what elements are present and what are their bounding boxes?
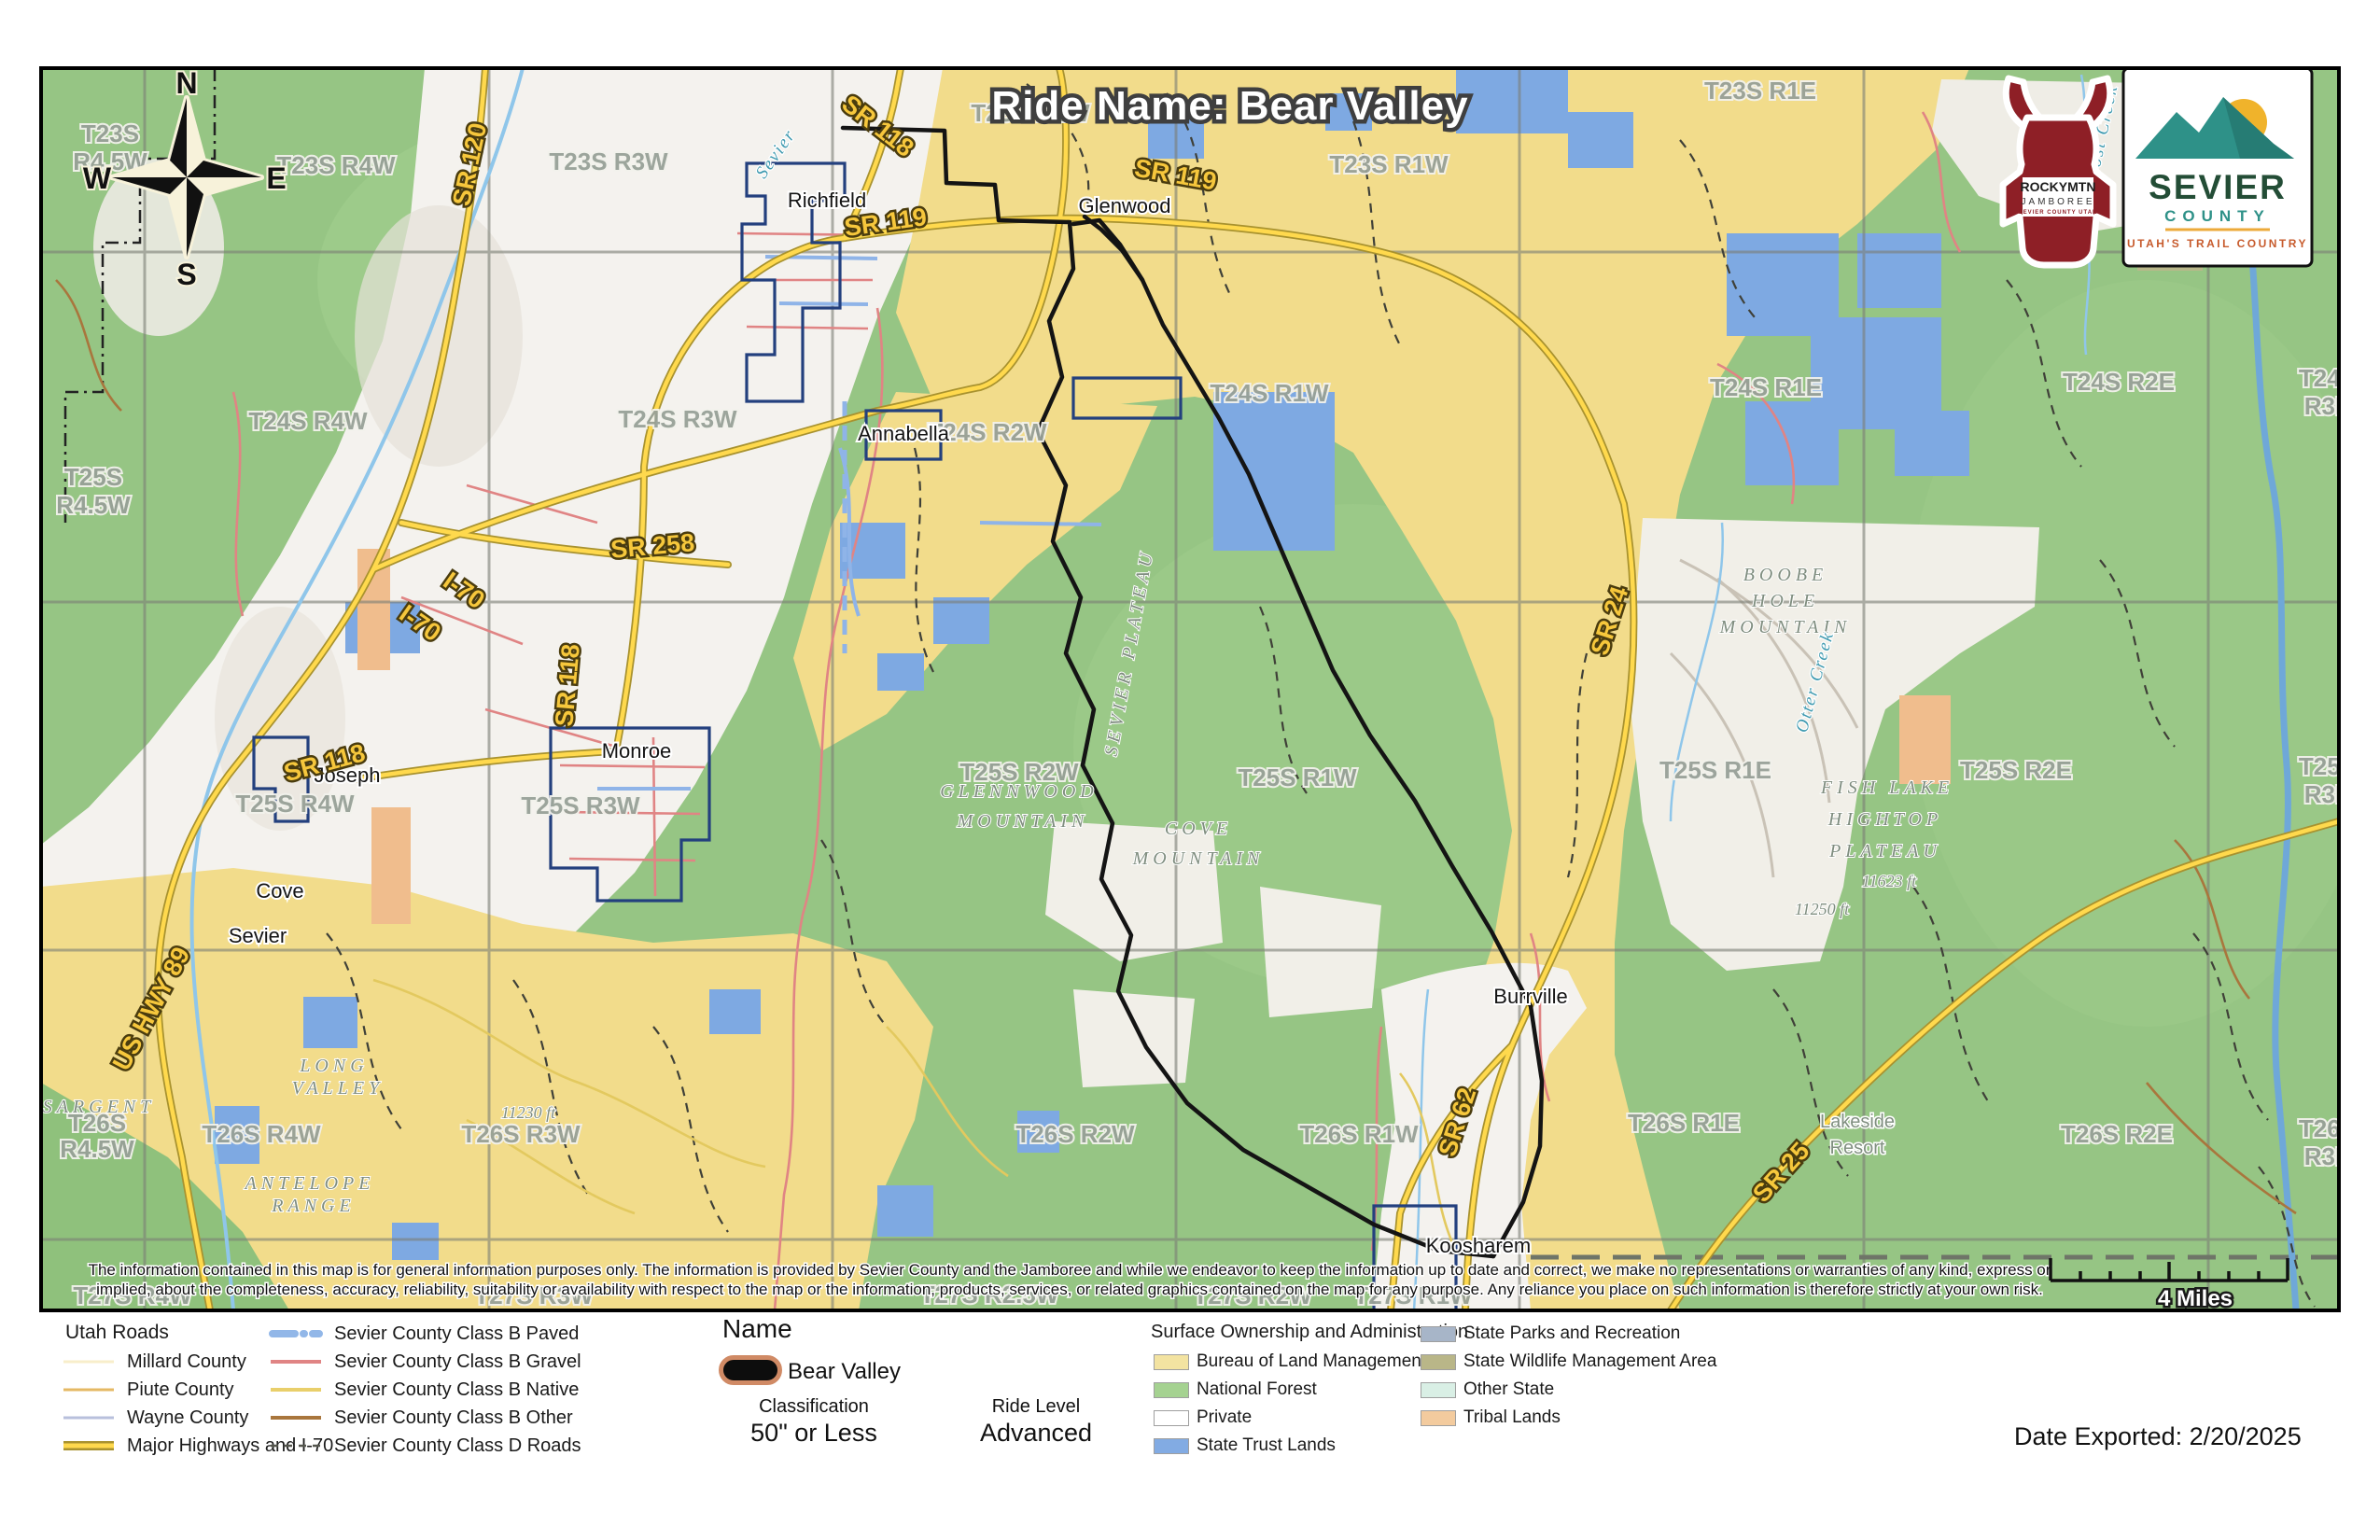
township-label: T25S R1E [1659,756,1771,784]
township-label: T23S R1E [1704,77,1816,105]
compass-s: S [176,258,196,291]
legend-item-wayne: Wayne County [62,1404,248,1432]
sevier-logo-tagline: UTAH'S TRAIL COUNTRY [2127,237,2308,250]
legend-item-b-native: Sevier County Class B Native [269,1376,579,1404]
legend-label: Other State [1463,1379,1554,1400]
b-paved-line-swatch [269,1327,323,1340]
mountain-label: MOUNTAIN [957,811,1089,832]
mountain-label: FISH LAKE [1820,777,1953,798]
mountain-label: BOOBE [1743,565,1828,585]
mountain-label: MOUNTAIN [1132,848,1265,869]
national-forest-swatch [1154,1382,1189,1398]
map-export-page: T23SR4.5WT23S R4WT23S R3WT23S R2WT23S R1… [0,0,2380,1540]
legend-item-other-state: Other State [1421,1376,1554,1404]
utah-roads-header: Utah Roads [65,1322,169,1344]
legend-label: National Forest [1197,1379,1317,1400]
legend-label: Sevier County Class B Gravel [334,1351,581,1373]
township-label: T23S R1W [1329,150,1449,178]
township-label: T23S R4W [276,151,396,179]
map-canvas: T23SR4.5WT23S R4WT23S R3WT23S R2WT23S R1… [0,0,2380,1540]
township-label: T24S R1E [1710,373,1822,401]
township-label: T25S R1W [1238,763,1357,791]
town-label: Koosharem [1426,1234,1532,1257]
major-highway-line-swatch [62,1439,116,1452]
sevier-logo-name: SEVIER [2149,168,2287,206]
township-label: T23S R3W [549,147,668,175]
township-label: T25S R3W [521,791,640,819]
mountain-label: COVE [1165,819,1232,839]
wayne-line-swatch [62,1411,116,1424]
date-exported: Date Exported: 2/20/2025 [2014,1422,2302,1451]
barren-center-3 [1260,887,1381,1017]
town-label: Annabella [858,422,950,445]
township-label: T26S R2W [1015,1120,1135,1148]
mountain-label: RANGE [271,1196,355,1216]
map-title: Ride Name: Bear Valley [991,83,1468,129]
elevation-label: 11623 ft [1862,872,1917,890]
town-label: Glenwood [1078,194,1170,217]
compass-n: N [175,66,197,100]
legend-label: Wayne County [127,1407,248,1429]
route-label: Bear Valley [788,1359,901,1385]
township-label: R4.5W [56,491,131,519]
classification-value: 50" or Less [711,1419,917,1448]
town-label: Sevier [229,924,287,947]
other-state-swatch [1421,1382,1456,1398]
ride-level-value: Advanced [933,1419,1139,1448]
township-label: R3E [2304,392,2352,420]
township-label: T25S R4W [235,790,355,818]
township-label: T25S R2E [1960,756,2072,784]
disclaimer-line-1: The information contained in this map is… [89,1261,2051,1279]
legend-item-b-other: Sevier County Class B Other [269,1404,573,1432]
mountain-label: HIGHTOP [1827,809,1942,830]
legend-label: Sevier County Class B Other [334,1407,573,1429]
tribal-swatch [1421,1410,1456,1426]
township-label: T25S [2299,752,2357,780]
mountain-label: GLENNWOOD [940,781,1098,802]
legend-label: Piute County [127,1379,234,1401]
township-label: T24S [2299,364,2357,392]
township-label: T23S [81,119,139,147]
legend-label: Bureau of Land Management [1197,1351,1426,1372]
private-swat​ch [1154,1410,1189,1426]
jamboree-line1: ROCKYMTN [2021,179,2096,194]
blm-swatch [1154,1354,1189,1370]
wildlife-swatch [1421,1354,1456,1370]
township-label: R4.5W [60,1135,134,1163]
b-native-line-swatch [269,1383,323,1396]
legend-label: State Trust Lands [1197,1435,1336,1456]
township-label: T24S R1W [1210,379,1329,407]
township-label: T26S R1E [1628,1109,1740,1137]
town-label: Monroe [602,739,672,763]
compass-w: W [83,161,112,195]
legend-item-millard: Millard County [62,1348,246,1376]
town-label: Richfield [788,189,866,212]
township-label: T24S R4W [248,407,368,435]
legend-label: Sevier County Class B Paved [334,1323,579,1345]
legend-label: Private [1197,1407,1252,1428]
township-label: T26S R2E [2061,1120,2173,1148]
legend-label: State Parks and Recreation [1463,1323,1680,1344]
legend-label: Sevier County Class B Native [334,1379,579,1401]
jamboree-line3: SEVIER COUNTY UTAH [2019,210,2098,216]
legend-item-class-d: Sevier County Class D Roads [269,1432,581,1460]
disclaimer-line-2: implied, about the completeness, accurac… [96,1281,2043,1298]
legend-item-state-parks: State Parks and Recreation [1421,1320,1680,1348]
town-label: Cove [256,879,303,903]
legend-label: State Wildlife Management Area [1463,1351,1716,1372]
township-label: T26S R3W [461,1120,581,1148]
piute-line-swatch [62,1383,116,1396]
mountain-label: VALLEY [292,1078,385,1099]
elevation-label: 11230 ft [501,1103,556,1122]
elevation-label: 11250 ft [1795,900,1850,918]
mountain-label: LONG [299,1056,368,1076]
resort-label: Lakeside [1820,1112,1895,1132]
legend-label: Millard County [127,1351,246,1373]
millard-line-swatch [62,1355,116,1368]
township-label: T24S R3W [618,405,737,433]
compass-e: E [266,161,286,195]
legend-item-b-gravel: Sevier County Class B Gravel [269,1348,581,1376]
legend-item-blm: Bureau of Land Management [1154,1348,1426,1376]
township-label: R3E [2304,1142,2352,1170]
legend-item-national-forest: National Forest [1154,1376,1317,1404]
state-trust-swatch [1154,1438,1189,1454]
state-parks-swatch [1421,1326,1456,1342]
legend-item-b-paved: Sevier County Class B Paved [269,1320,579,1348]
legend-label: Sevier County Class D Roads [334,1435,581,1457]
sevier-logo-sub: COUNTY [2164,207,2271,225]
township-label: R3E [2304,780,2352,808]
legend-item-state-trust: State Trust Lands [1154,1432,1336,1460]
mountain-label: ANTELOPE [244,1173,375,1194]
township-label: T24S R2E [2063,368,2175,396]
township-label: T26S R4W [202,1120,321,1148]
township-label: T26S R1W [1299,1120,1419,1148]
mountain-label: SARGENT [43,1097,156,1117]
sevier-county-logo: SEVIER COUNTY UTAH'S TRAIL COUNTRY [2123,68,2312,266]
class-d-line-swatch [269,1439,323,1452]
legend-item-piute: Piute County [62,1376,234,1404]
jamboree-line2: JAMBOREE [2021,197,2094,207]
legend-item-private: Private [1154,1404,1252,1432]
town-label: Burrville [1493,985,1567,1008]
legend-label: Tribal Lands [1463,1407,1561,1428]
classification-header: Classification [711,1396,917,1418]
legend-item-wildlife: State Wildlife Management Area [1421,1348,1716,1376]
b-other-line-swatch [269,1411,323,1424]
resort-label: Resort [1830,1138,1885,1158]
route-symbol [719,1355,782,1385]
scale-label: 4 Miles [2158,1286,2233,1311]
mountain-label: PLATEAU [1828,841,1941,861]
ride-name-header: Name [722,1314,792,1344]
township-label: T25S [64,463,122,491]
legend-item-tribal: Tribal Lands [1421,1404,1561,1432]
township-label: T26S [2299,1114,2357,1142]
ride-level-header: Ride Level [933,1396,1139,1418]
b-gravel-line-swatch [269,1355,323,1368]
mountain-label: HOLE [1751,591,1819,611]
map-body: T23SR4.5WT23S R4WT23S R3WT23S R2WT23S R1… [41,66,2380,1363]
